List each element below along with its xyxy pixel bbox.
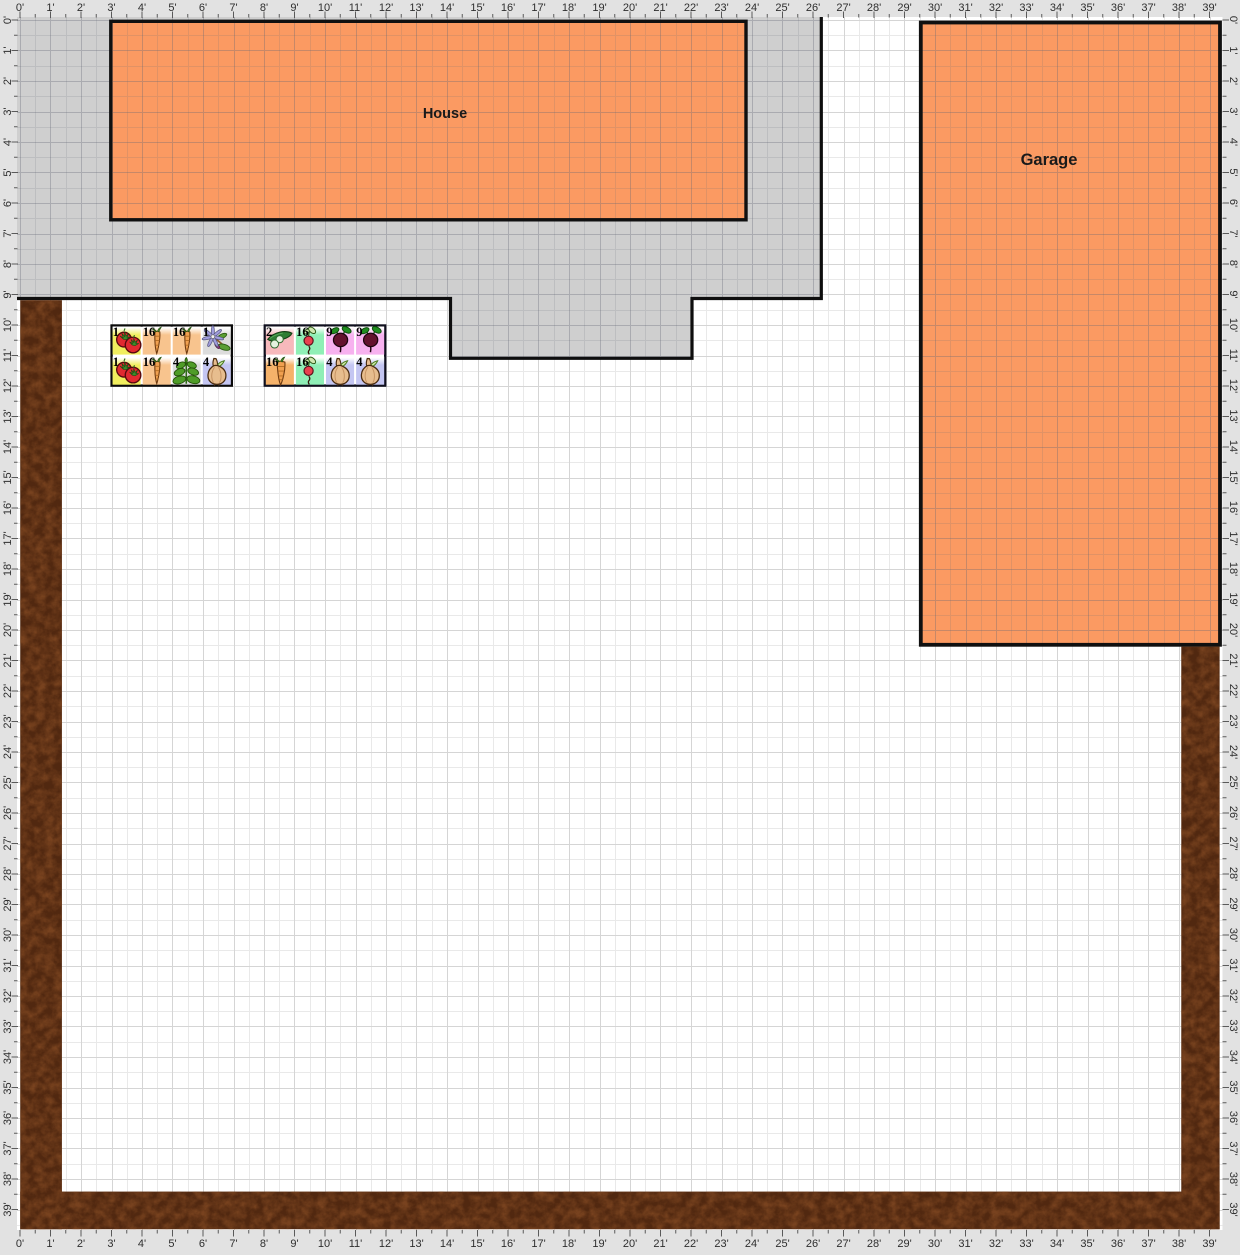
svg-text:8': 8': [2, 260, 14, 268]
svg-text:25': 25': [1227, 775, 1239, 789]
svg-text:5': 5': [1227, 168, 1239, 176]
svg-text:6': 6': [199, 2, 207, 14]
svg-text:14': 14': [2, 440, 14, 454]
svg-text:10': 10': [1227, 318, 1239, 332]
svg-text:17': 17': [531, 2, 545, 14]
svg-text:38': 38': [1172, 2, 1186, 14]
svg-text:19': 19': [2, 592, 14, 606]
svg-text:16': 16': [2, 501, 14, 515]
svg-text:19': 19': [1227, 592, 1239, 606]
svg-text:1': 1': [46, 2, 54, 14]
svg-text:10': 10': [2, 318, 14, 332]
svg-text:12': 12': [379, 1238, 393, 1250]
svg-text:4: 4: [173, 355, 180, 369]
svg-text:13': 13': [2, 409, 14, 423]
svg-text:4: 4: [326, 355, 333, 369]
svg-text:13': 13': [409, 1238, 423, 1250]
svg-text:11': 11': [2, 349, 14, 363]
svg-text:13': 13': [409, 2, 423, 14]
svg-text:Garage: Garage: [1021, 151, 1078, 169]
svg-text:26': 26': [2, 806, 14, 820]
svg-text:31': 31': [958, 2, 972, 14]
svg-text:20': 20': [623, 2, 637, 14]
svg-text:9': 9': [1227, 290, 1239, 298]
svg-text:33': 33': [2, 1019, 14, 1033]
svg-text:3': 3': [107, 1238, 115, 1250]
svg-text:23': 23': [714, 2, 728, 14]
svg-text:32': 32': [989, 1238, 1003, 1250]
svg-text:7': 7': [229, 1238, 237, 1250]
svg-text:36': 36': [1111, 2, 1125, 14]
svg-text:21': 21': [653, 2, 667, 14]
svg-text:23': 23': [2, 714, 14, 728]
svg-text:12': 12': [1227, 379, 1239, 393]
svg-text:31': 31': [1227, 958, 1239, 972]
svg-text:30': 30': [2, 928, 14, 942]
svg-text:16: 16: [266, 355, 279, 369]
svg-text:13': 13': [1227, 409, 1239, 423]
svg-text:0': 0': [16, 1238, 24, 1250]
svg-text:31': 31': [2, 958, 14, 972]
svg-text:29': 29': [897, 1238, 911, 1250]
svg-text:11': 11': [1227, 349, 1239, 363]
svg-text:34': 34': [1227, 1050, 1239, 1064]
svg-text:16: 16: [296, 355, 309, 369]
svg-text:0': 0': [1227, 16, 1239, 24]
svg-text:26': 26': [1227, 806, 1239, 820]
svg-text:28': 28': [1227, 867, 1239, 881]
svg-text:9': 9': [290, 2, 298, 14]
svg-text:35': 35': [1080, 2, 1094, 14]
svg-text:31': 31': [958, 1238, 972, 1250]
svg-text:10': 10': [318, 2, 332, 14]
svg-text:32': 32': [1227, 989, 1239, 1003]
svg-text:9: 9: [356, 325, 362, 339]
svg-text:20': 20': [1227, 623, 1239, 637]
svg-text:27': 27': [1227, 836, 1239, 850]
svg-text:39': 39': [1202, 1238, 1216, 1250]
svg-text:27': 27': [2, 836, 14, 850]
svg-text:33': 33': [1019, 2, 1033, 14]
svg-text:15': 15': [470, 1238, 484, 1250]
svg-text:2': 2': [2, 77, 14, 85]
svg-text:28': 28': [867, 2, 881, 14]
svg-text:20': 20': [2, 623, 14, 637]
svg-text:24': 24': [745, 2, 759, 14]
svg-text:1: 1: [113, 355, 119, 369]
svg-text:34': 34': [1050, 2, 1064, 14]
svg-text:37': 37': [2, 1141, 14, 1155]
svg-text:1': 1': [1227, 46, 1239, 54]
svg-text:16': 16': [501, 2, 515, 14]
svg-text:14': 14': [1227, 440, 1239, 454]
svg-text:35': 35': [1227, 1080, 1239, 1094]
svg-text:9': 9': [2, 290, 14, 298]
svg-text:0': 0': [16, 2, 24, 14]
svg-text:6': 6': [2, 199, 14, 207]
svg-text:17': 17': [531, 1238, 545, 1250]
svg-text:39': 39': [1227, 1202, 1239, 1216]
svg-text:5': 5': [168, 2, 176, 14]
svg-text:24': 24': [1227, 745, 1239, 759]
svg-text:3': 3': [107, 2, 115, 14]
svg-text:16': 16': [1227, 501, 1239, 515]
svg-text:28': 28': [867, 1238, 881, 1250]
svg-text:2': 2': [77, 1238, 85, 1250]
svg-text:34': 34': [1050, 1238, 1064, 1250]
svg-text:4': 4': [138, 2, 146, 14]
svg-text:23': 23': [714, 1238, 728, 1250]
svg-text:37': 37': [1141, 2, 1155, 14]
svg-text:8': 8': [260, 2, 268, 14]
svg-text:23': 23': [1227, 714, 1239, 728]
svg-text:32': 32': [2, 989, 14, 1003]
svg-text:11': 11': [349, 2, 363, 14]
svg-text:11': 11': [349, 1238, 363, 1250]
svg-text:15': 15': [1227, 470, 1239, 484]
svg-text:14': 14': [440, 2, 454, 14]
svg-text:38': 38': [1227, 1172, 1239, 1186]
svg-text:26': 26': [806, 2, 820, 14]
svg-text:22': 22': [684, 2, 698, 14]
svg-text:24': 24': [2, 745, 14, 759]
svg-text:27': 27': [836, 1238, 850, 1250]
svg-text:4': 4': [1227, 138, 1239, 146]
svg-text:18': 18': [1227, 562, 1239, 576]
svg-text:14': 14': [440, 1238, 454, 1250]
svg-text:36': 36': [1111, 1238, 1125, 1250]
svg-text:2: 2: [266, 325, 272, 339]
svg-text:29': 29': [2, 897, 14, 911]
svg-text:22': 22': [684, 1238, 698, 1250]
svg-text:34': 34': [2, 1050, 14, 1064]
svg-text:15': 15': [470, 2, 484, 14]
svg-text:12': 12': [2, 379, 14, 393]
svg-text:2': 2': [1227, 77, 1239, 85]
svg-text:35': 35': [2, 1080, 14, 1094]
svg-text:7': 7': [1227, 229, 1239, 237]
svg-text:5': 5': [168, 1238, 176, 1250]
svg-text:6': 6': [1227, 199, 1239, 207]
svg-text:8': 8': [260, 1238, 268, 1250]
svg-text:7': 7': [2, 229, 14, 237]
svg-text:18': 18': [562, 2, 576, 14]
svg-text:21': 21': [2, 653, 14, 667]
svg-text:37': 37': [1227, 1141, 1239, 1155]
svg-text:25': 25': [775, 2, 789, 14]
svg-text:21': 21': [1227, 653, 1239, 667]
svg-text:30': 30': [928, 2, 942, 14]
svg-text:17': 17': [1227, 531, 1239, 545]
svg-text:33': 33': [1227, 1019, 1239, 1033]
svg-text:28': 28': [2, 867, 14, 881]
svg-text:4: 4: [203, 355, 210, 369]
svg-text:33': 33': [1019, 1238, 1033, 1250]
svg-text:7': 7': [229, 2, 237, 14]
svg-text:15': 15': [2, 470, 14, 484]
svg-text:18': 18': [2, 562, 14, 576]
svg-text:16: 16: [143, 355, 156, 369]
svg-text:6': 6': [199, 1238, 207, 1250]
svg-text:32': 32': [989, 2, 1003, 14]
svg-text:26': 26': [806, 1238, 820, 1250]
svg-text:38': 38': [2, 1172, 14, 1186]
svg-text:0': 0': [2, 16, 14, 24]
svg-text:2': 2': [77, 2, 85, 14]
svg-text:22': 22': [2, 684, 14, 698]
svg-text:36': 36': [1227, 1111, 1239, 1125]
svg-text:25': 25': [2, 775, 14, 789]
svg-text:22': 22': [1227, 684, 1239, 698]
svg-text:1': 1': [2, 46, 14, 54]
svg-text:5': 5': [2, 168, 14, 176]
svg-text:39': 39': [1202, 2, 1216, 14]
svg-text:35': 35': [1080, 1238, 1094, 1250]
svg-text:30': 30': [928, 1238, 942, 1250]
svg-text:37': 37': [1141, 1238, 1155, 1250]
svg-text:8': 8': [1227, 260, 1239, 268]
svg-text:20': 20': [623, 1238, 637, 1250]
svg-text:19': 19': [592, 2, 606, 14]
svg-text:9: 9: [326, 325, 332, 339]
svg-text:29': 29': [897, 2, 911, 14]
svg-text:17': 17': [2, 531, 14, 545]
svg-text:12': 12': [379, 2, 393, 14]
svg-text:27': 27': [836, 2, 850, 14]
svg-text:30': 30': [1227, 928, 1239, 942]
svg-text:16: 16: [296, 325, 309, 339]
svg-text:18': 18': [562, 1238, 576, 1250]
svg-text:3': 3': [2, 107, 14, 115]
svg-text:36': 36': [2, 1111, 14, 1125]
svg-text:3': 3': [1227, 107, 1239, 115]
svg-text:39': 39': [2, 1202, 14, 1216]
svg-text:1: 1: [113, 325, 119, 339]
svg-text:4': 4': [138, 1238, 146, 1250]
svg-text:29': 29': [1227, 897, 1239, 911]
svg-text:4: 4: [356, 355, 363, 369]
svg-text:24': 24': [745, 1238, 759, 1250]
svg-text:16: 16: [143, 325, 156, 339]
svg-text:10': 10': [318, 1238, 332, 1250]
svg-text:House: House: [423, 106, 467, 122]
svg-text:1': 1': [46, 1238, 54, 1250]
svg-text:4': 4': [2, 138, 14, 146]
svg-text:21': 21': [653, 1238, 667, 1250]
svg-text:19': 19': [592, 1238, 606, 1250]
svg-text:25': 25': [775, 1238, 789, 1250]
svg-text:1: 1: [203, 325, 209, 339]
svg-text:9': 9': [290, 1238, 298, 1250]
svg-text:38': 38': [1172, 1238, 1186, 1250]
svg-text:16': 16': [501, 1238, 515, 1250]
svg-text:16: 16: [173, 325, 186, 339]
